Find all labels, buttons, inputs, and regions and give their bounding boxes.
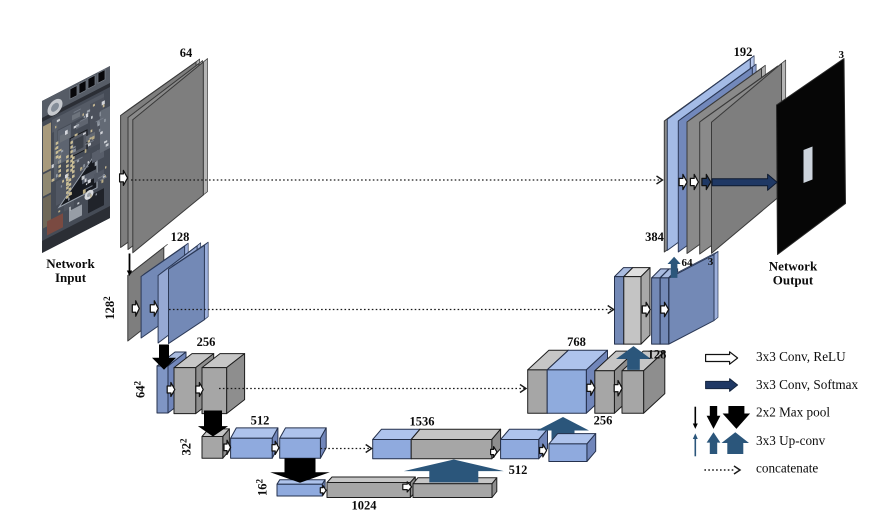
svg-text:3: 3 — [708, 256, 714, 268]
svg-text:3x3 Up-conv: 3x3 Up-conv — [756, 433, 826, 448]
svg-text:Network: Network — [769, 259, 818, 274]
svg-text:256: 256 — [197, 335, 216, 349]
svg-text:384: 384 — [645, 230, 665, 244]
svg-text:512: 512 — [509, 463, 528, 477]
svg-text:192: 192 — [734, 45, 753, 59]
svg-text:concatenate: concatenate — [756, 461, 818, 476]
svg-text:256: 256 — [594, 414, 613, 428]
svg-text:1024: 1024 — [352, 499, 378, 513]
svg-text:64: 64 — [682, 257, 694, 269]
svg-text:512: 512 — [251, 414, 270, 428]
svg-text:128: 128 — [171, 230, 190, 244]
svg-text:128: 128 — [648, 348, 667, 362]
svg-text:Network: Network — [46, 256, 95, 271]
svg-text:768: 768 — [567, 335, 586, 349]
svg-text:Input: Input — [55, 270, 87, 285]
svg-text:3x3 Conv, ReLU: 3x3 Conv, ReLU — [756, 349, 846, 364]
svg-text:3x3 Conv, Softmax: 3x3 Conv, Softmax — [756, 377, 858, 392]
svg-text:64: 64 — [180, 46, 193, 60]
svg-text:3: 3 — [839, 49, 845, 61]
svg-text:Output: Output — [773, 273, 814, 288]
svg-text:2x2 Max pool: 2x2 Max pool — [756, 405, 830, 420]
svg-text:1536: 1536 — [410, 415, 435, 429]
